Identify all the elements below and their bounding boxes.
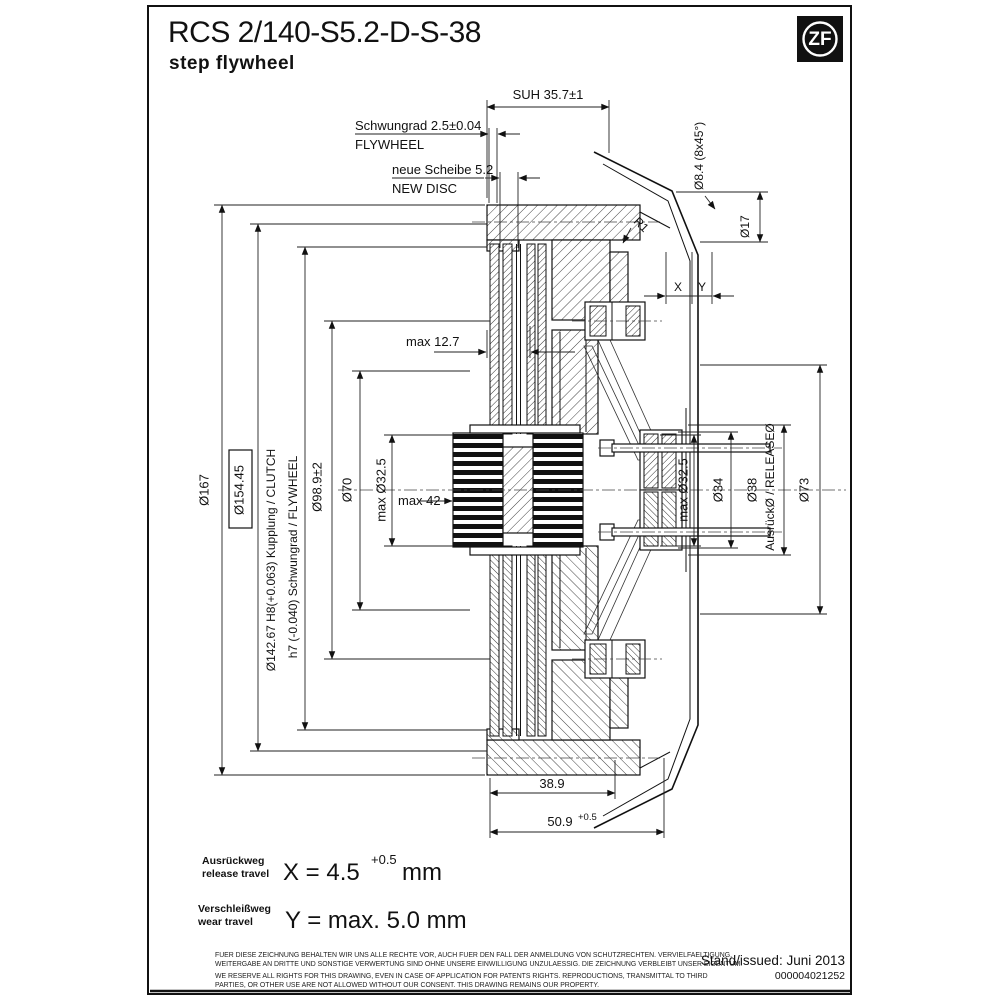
dim-flywheel-en: FLYWHEEL xyxy=(355,137,424,152)
dim-max42: max 42 xyxy=(398,493,441,508)
legal-de-line2: WEITERGABE AN DRITTE UND SONSTIGE VERWER… xyxy=(215,961,742,968)
wear-travel-value: Y = max. 5.0 mm xyxy=(285,907,467,934)
dim-d34: Ø34 xyxy=(710,478,725,503)
release-travel-value: X = 4.5 xyxy=(283,859,360,886)
release-travel-unit: mm xyxy=(402,859,442,886)
dim-max325-left: max Ø32.5 xyxy=(373,458,388,522)
dim-w509-tolerance: +0.5 xyxy=(578,812,597,823)
clutch-cover-flange xyxy=(610,252,628,310)
clutch-technical-drawing: RCS 2/140-S5.2-D-S-38 step flywheel ZF xyxy=(0,0,1000,1000)
dim-d142-flywheel: h7 (-0.040) Schwungrad / FLYWHEEL xyxy=(286,455,300,658)
dim-max325-right: max Ø32.5 xyxy=(675,458,690,522)
legal-en-line2: PARTIES, OR OTHER USE ARE NOT ALLOWED WI… xyxy=(215,982,599,989)
dim-d142-clutch: Ø142.67 H8(+0.063) Kupplung / CLUTCH xyxy=(264,449,278,671)
dim-disc-en: NEW DISC xyxy=(392,181,457,196)
drawing-title: RCS 2/140-S5.2-D-S-38 xyxy=(168,16,481,49)
dim-suh: SUH 35.7±1 xyxy=(513,87,584,102)
dim-x: X xyxy=(674,280,682,294)
release-travel-label-de: Ausrückweg xyxy=(202,855,264,867)
release-travel-tolerance: +0.5 xyxy=(371,852,397,867)
dim-release: AusrückØ / RELEASEØ xyxy=(763,423,777,550)
dim-d154: Ø154.45 xyxy=(231,465,246,515)
dim-d98: Ø98.9±2 xyxy=(309,462,324,512)
dim-d73: Ø73 xyxy=(796,478,811,503)
dim-y: Y xyxy=(698,280,706,294)
dim-hole: Ø8.4 (8x45°) xyxy=(692,122,706,190)
wear-travel-label-en: wear travel xyxy=(197,916,253,928)
dim-max127: max 12.7 xyxy=(406,334,459,349)
drawing-subtitle: step flywheel xyxy=(169,53,295,74)
wear-travel-label-de: Verschleißweg xyxy=(198,903,271,915)
document-number: 000004021252 xyxy=(775,970,845,982)
dim-d38: Ø38 xyxy=(744,478,759,503)
dim-disc-de: neue Scheibe 5.2 xyxy=(392,162,493,177)
release-travel-label-en: release travel xyxy=(202,868,269,880)
dim-d167: Ø167 xyxy=(196,474,211,506)
legal-en-line1: WE RESERVE ALL RIGHTS FOR THIS DRAWING, … xyxy=(215,973,708,980)
dim-w509: 50.9 xyxy=(547,814,572,829)
zf-logo-text: ZF xyxy=(808,29,831,50)
dim-w389: 38.9 xyxy=(539,776,564,791)
dim-d17: Ø17 xyxy=(738,215,752,238)
issued-date: Stand/issued: Juni 2013 xyxy=(701,953,845,968)
dim-d70: Ø70 xyxy=(339,478,354,503)
legal-de-line1: FUER DIESE ZEICHNUNG BEHALTEN WIR UNS AL… xyxy=(215,952,732,959)
dim-flywheel-de: Schwungrad 2.5±0.04 xyxy=(355,118,481,133)
drawing-sheet: RCS 2/140-S5.2-D-S-38 step flywheel ZF xyxy=(0,0,1000,1000)
zf-logo: ZF xyxy=(797,16,843,62)
flywheel-rim xyxy=(487,205,640,240)
